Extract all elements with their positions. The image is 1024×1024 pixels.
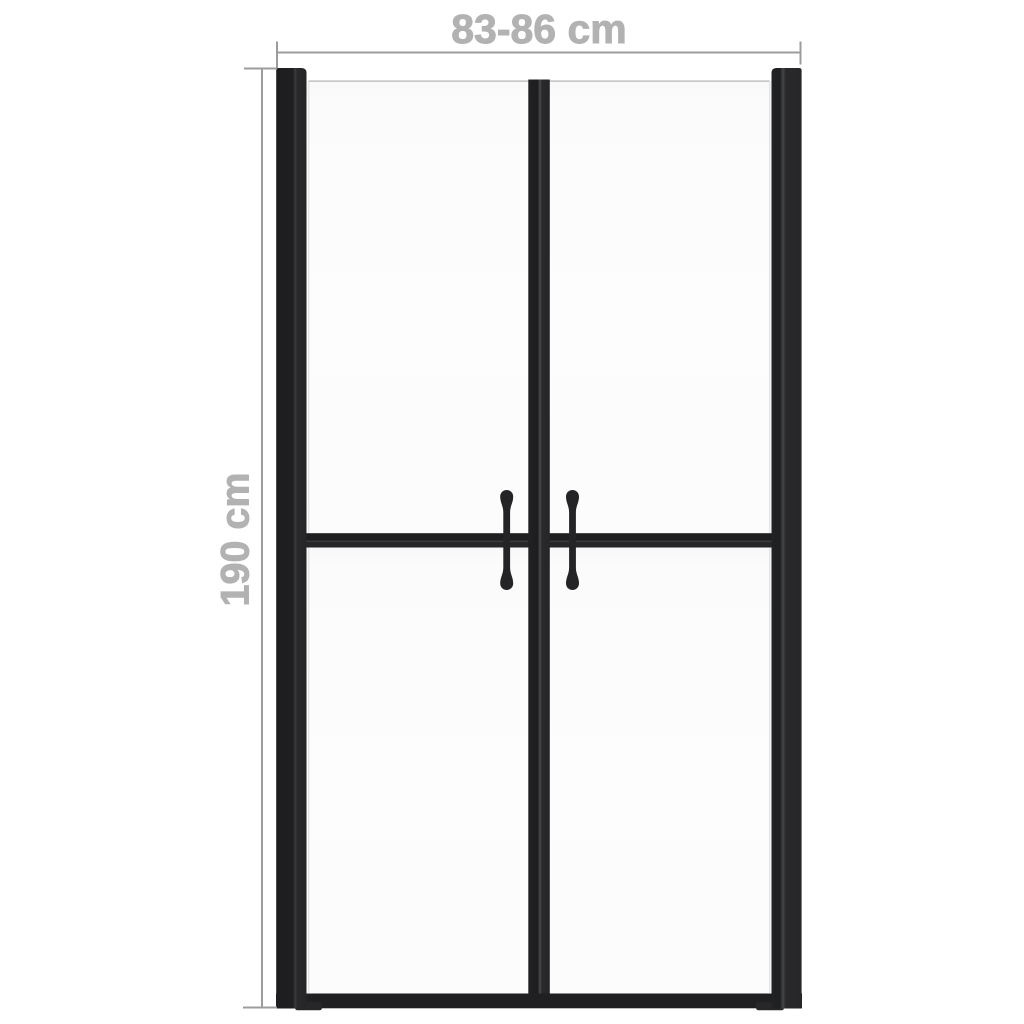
svg-text:190 cm: 190 cm: [214, 473, 258, 607]
svg-text:83-86 cm: 83-86 cm: [451, 6, 627, 52]
